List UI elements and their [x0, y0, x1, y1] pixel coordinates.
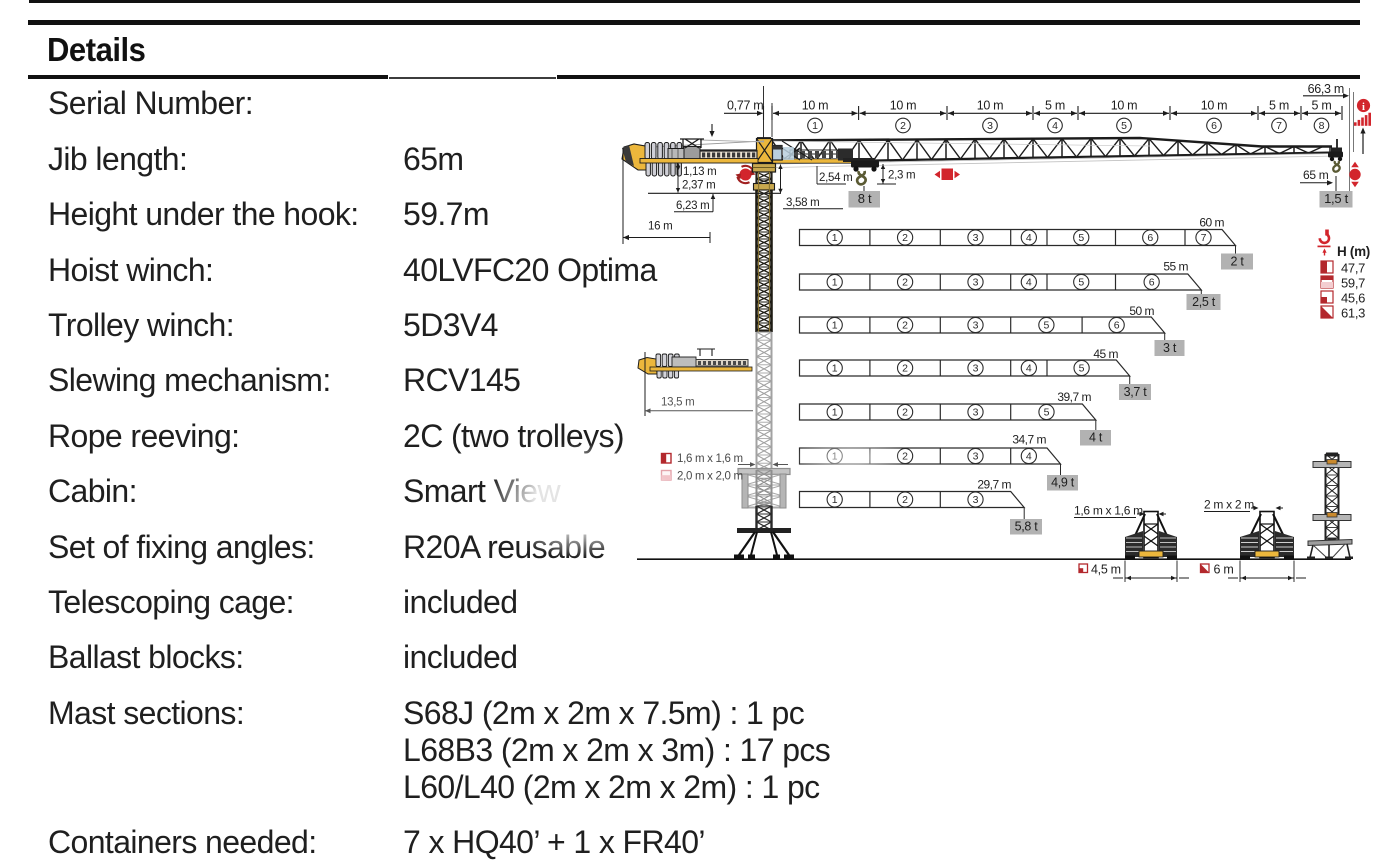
svg-text:4,5 m: 4,5 m [1091, 563, 1121, 577]
svg-text:5: 5 [1043, 320, 1049, 332]
svg-text:2: 2 [900, 120, 906, 132]
svg-text:10 m: 10 m [890, 99, 917, 113]
svg-text:1,6 m x 1,6 m: 1,6 m x 1,6 m [1074, 504, 1143, 518]
svg-text:45 m: 45 m [1093, 347, 1118, 361]
svg-text:5: 5 [1078, 232, 1084, 244]
svg-text:2 m x 2 m: 2 m x 2 m [1204, 498, 1254, 512]
svg-text:0,77 m: 0,77 m [727, 99, 763, 113]
svg-text:1: 1 [832, 232, 838, 244]
svg-text:13,5 m: 13,5 m [661, 397, 694, 409]
svg-text:6: 6 [1149, 277, 1155, 289]
svg-text:3,7 t: 3,7 t [1124, 385, 1148, 399]
svg-text:1,5 t: 1,5 t [1324, 191, 1348, 206]
svg-text:10 m: 10 m [977, 99, 1004, 113]
svg-text:39,7 m: 39,7 m [1057, 390, 1091, 404]
svg-text:3: 3 [973, 363, 979, 375]
svg-text:5 m: 5 m [1045, 99, 1065, 113]
svg-text:1: 1 [832, 407, 838, 419]
svg-text:2: 2 [902, 494, 908, 506]
svg-text:5 m: 5 m [1312, 99, 1332, 113]
svg-text:2,3 m: 2,3 m [888, 170, 915, 182]
svg-text:60 m: 60 m [1199, 216, 1224, 230]
svg-text:3: 3 [973, 277, 979, 289]
svg-text:2: 2 [902, 320, 908, 332]
svg-text:3: 3 [973, 407, 979, 419]
svg-text:3: 3 [973, 451, 979, 463]
svg-text:2,5 t: 2,5 t [1192, 295, 1216, 309]
svg-text:1,13 m: 1,13 m [683, 166, 716, 178]
svg-text:3: 3 [987, 120, 993, 132]
svg-text:3,58 m: 3,58 m [786, 197, 819, 209]
svg-text:1: 1 [832, 363, 838, 375]
svg-text:4: 4 [1026, 277, 1032, 289]
svg-text:4,9 t: 4,9 t [1051, 476, 1075, 490]
svg-text:7: 7 [1201, 232, 1207, 244]
svg-text:8 t: 8 t [858, 191, 872, 206]
svg-text:2: 2 [902, 277, 908, 289]
svg-text:34,7 m: 34,7 m [1012, 433, 1046, 447]
svg-text:1: 1 [832, 320, 838, 332]
svg-text:1: 1 [832, 494, 838, 506]
svg-text:29,7 m: 29,7 m [977, 478, 1011, 492]
svg-text:4: 4 [1026, 363, 1032, 375]
svg-text:1: 1 [812, 120, 818, 132]
svg-text:i: i [1362, 102, 1365, 113]
svg-text:2: 2 [902, 407, 908, 419]
svg-text:3: 3 [973, 320, 979, 332]
svg-text:6: 6 [1114, 320, 1120, 332]
svg-text:3: 3 [973, 232, 979, 244]
svg-text:7: 7 [1276, 120, 1282, 132]
svg-text:55 m: 55 m [1163, 260, 1188, 274]
svg-text:3: 3 [973, 494, 979, 506]
svg-text:65 m: 65 m [1303, 168, 1329, 182]
svg-text:5 m: 5 m [1269, 99, 1289, 113]
svg-text:4 t: 4 t [1089, 431, 1103, 445]
svg-text:5: 5 [1121, 120, 1127, 132]
svg-text:6 m: 6 m [1214, 563, 1234, 577]
svg-text:2: 2 [902, 363, 908, 375]
svg-text:5,8 t: 5,8 t [1015, 520, 1039, 534]
svg-text:10 m: 10 m [802, 99, 829, 113]
svg-text:2 t: 2 t [1231, 255, 1245, 269]
svg-text:3 t: 3 t [1163, 341, 1177, 355]
svg-text:59,7: 59,7 [1341, 276, 1365, 291]
svg-text:5: 5 [1079, 363, 1085, 375]
svg-text:45,6: 45,6 [1341, 291, 1365, 306]
svg-text:6: 6 [1147, 232, 1153, 244]
svg-text:10 m: 10 m [1201, 99, 1228, 113]
svg-text:66,3 m: 66,3 m [1308, 82, 1344, 96]
svg-text:8: 8 [1319, 120, 1325, 132]
svg-text:61,3: 61,3 [1341, 306, 1365, 321]
svg-text:6,23 m: 6,23 m [676, 200, 709, 212]
svg-text:2,37 m: 2,37 m [682, 180, 715, 192]
svg-text:5: 5 [1044, 407, 1050, 419]
svg-text:10 m: 10 m [1111, 99, 1138, 113]
svg-text:5: 5 [1078, 277, 1084, 289]
svg-text:16 m: 16 m [648, 221, 672, 233]
svg-text:4: 4 [1026, 232, 1032, 244]
svg-text:1: 1 [832, 277, 838, 289]
svg-text:4: 4 [1026, 451, 1032, 463]
svg-text:6: 6 [1211, 120, 1217, 132]
svg-text:2: 2 [902, 232, 908, 244]
svg-text:47,7: 47,7 [1341, 261, 1365, 276]
svg-text:2,54 m: 2,54 m [819, 172, 852, 184]
svg-text:4: 4 [1052, 120, 1058, 132]
svg-text:50 m: 50 m [1129, 304, 1154, 318]
svg-text:H (m): H (m) [1337, 244, 1370, 259]
